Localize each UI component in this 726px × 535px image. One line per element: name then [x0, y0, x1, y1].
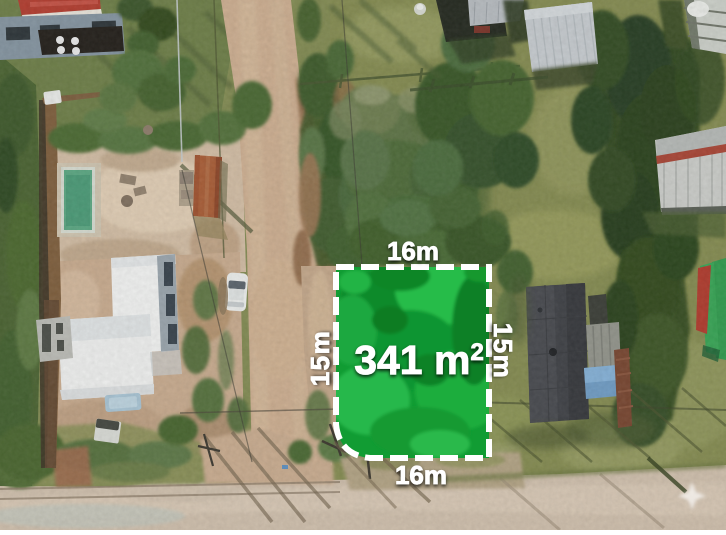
svg-text:15m: 15m	[305, 330, 335, 387]
svg-text:16m: 16m	[387, 236, 439, 266]
svg-text:341 m2: 341 m2	[354, 337, 484, 383]
svg-text:16m: 16m	[395, 460, 447, 490]
svg-text:15m: 15m	[488, 323, 518, 380]
